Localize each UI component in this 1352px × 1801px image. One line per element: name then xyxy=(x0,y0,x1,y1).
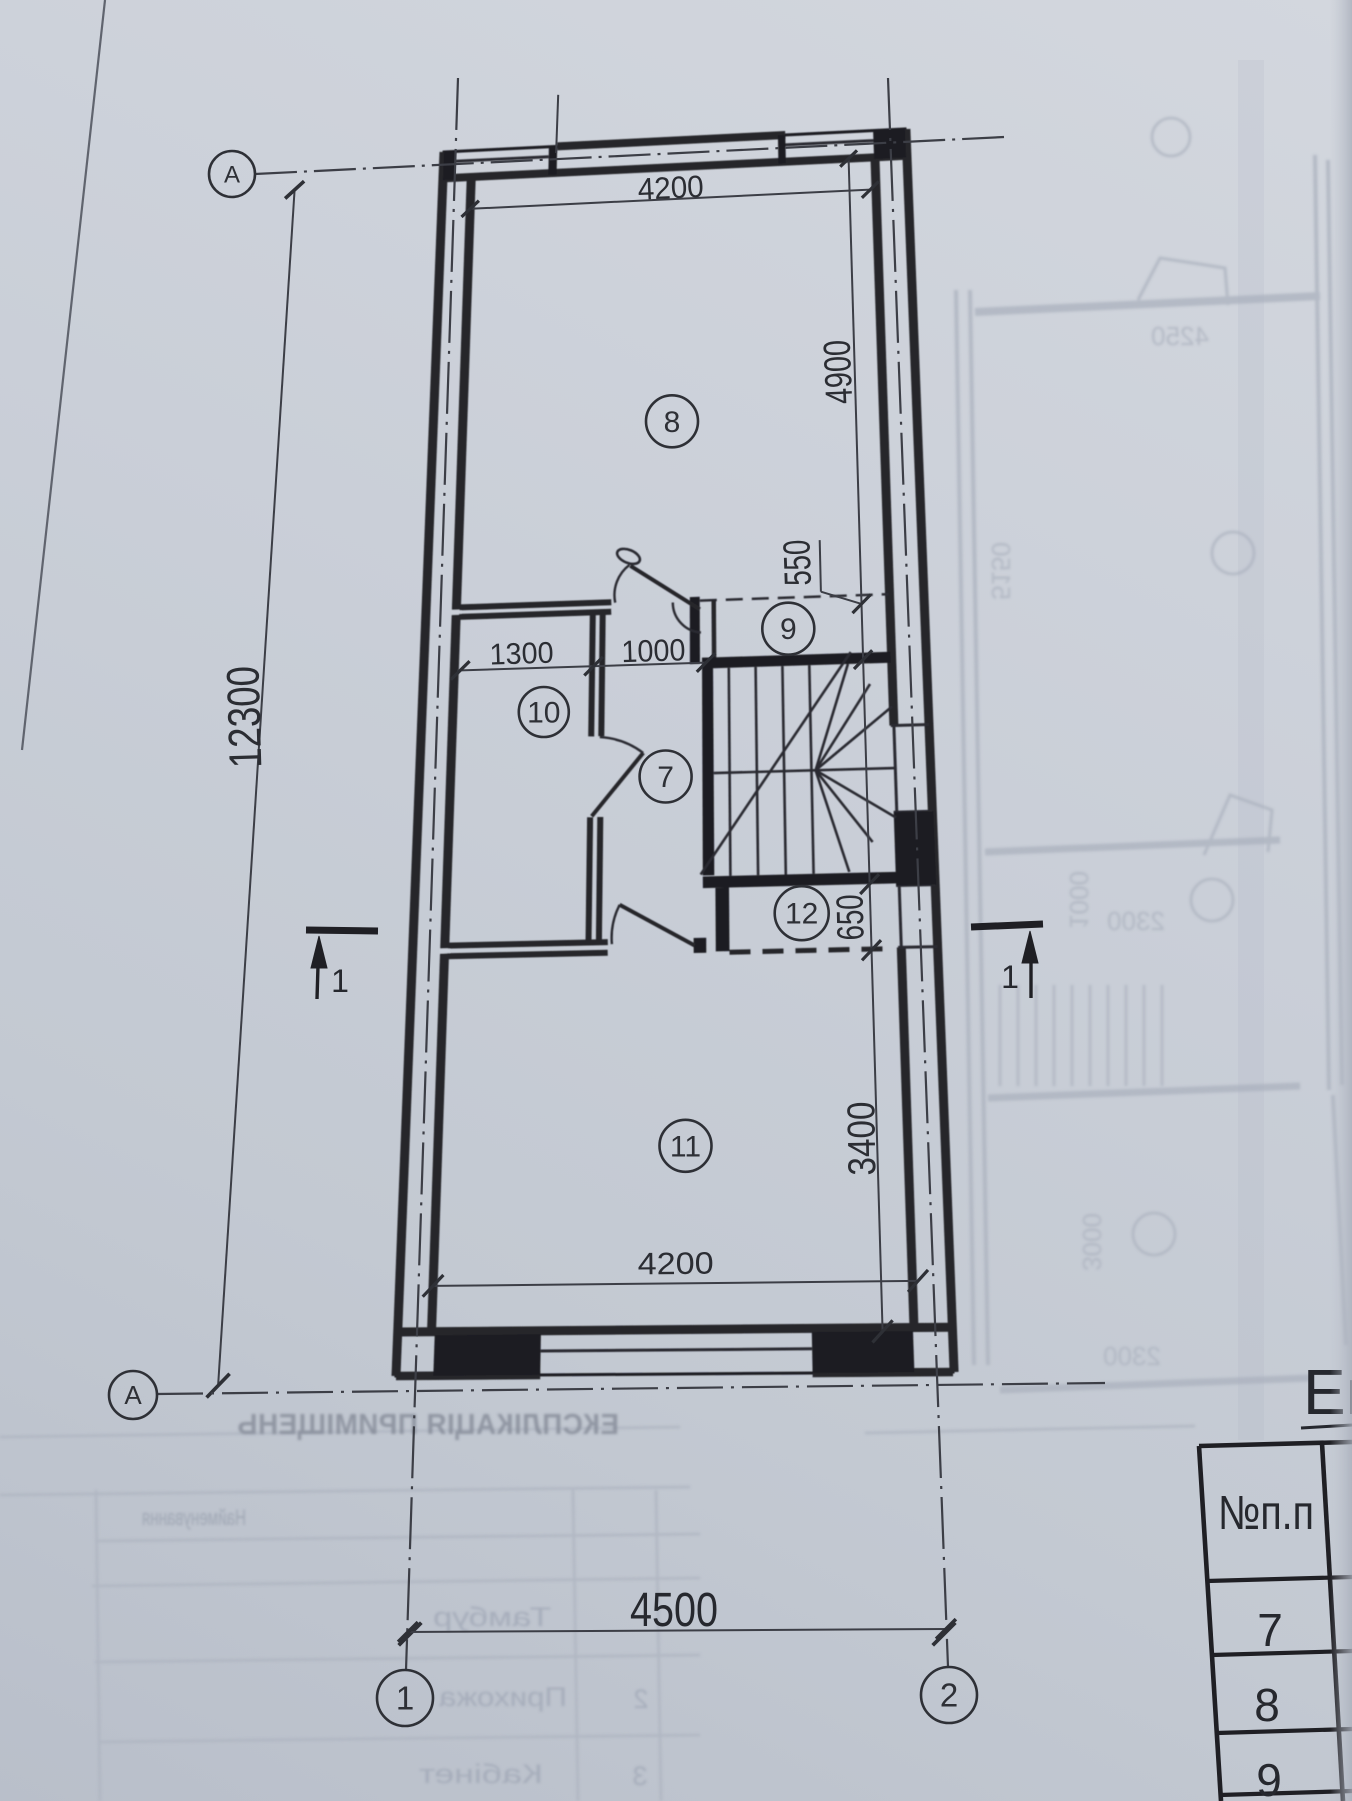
svg-text:2: 2 xyxy=(940,1677,958,1714)
svg-text:9: 9 xyxy=(780,613,797,646)
svg-text:Найменування: Найменування xyxy=(142,1505,246,1530)
svg-text:№п.п: №п.п xyxy=(1218,1487,1314,1540)
svg-text:12300: 12300 xyxy=(216,665,271,768)
svg-text:3000: 3000 xyxy=(1077,1213,1107,1271)
svg-text:550: 550 xyxy=(776,539,820,586)
svg-text:10: 10 xyxy=(527,697,560,730)
svg-text:Прихожа: Прихожа xyxy=(438,1682,567,1712)
svg-text:A: A xyxy=(124,1380,142,1410)
svg-text:Кабінет: Кабінет xyxy=(419,1759,543,1789)
svg-text:2: 2 xyxy=(633,1684,648,1714)
svg-text:4250: 4250 xyxy=(1151,321,1209,351)
svg-text:8: 8 xyxy=(664,406,681,439)
svg-text:7: 7 xyxy=(657,761,674,794)
svg-text:1000: 1000 xyxy=(1064,871,1094,929)
svg-text:8: 8 xyxy=(1254,1679,1280,1731)
svg-text:11: 11 xyxy=(670,1130,701,1163)
svg-text:4200: 4200 xyxy=(637,1246,713,1282)
svg-text:3: 3 xyxy=(632,1761,647,1791)
svg-text:4500: 4500 xyxy=(630,1584,718,1637)
svg-text:1: 1 xyxy=(396,1680,414,1717)
svg-text:3400: 3400 xyxy=(840,1101,884,1176)
svg-text:5150: 5150 xyxy=(986,542,1016,600)
svg-text:4200: 4200 xyxy=(637,169,705,207)
svg-text:1000: 1000 xyxy=(621,632,686,669)
svg-text:1300: 1300 xyxy=(489,637,554,672)
svg-text:2300: 2300 xyxy=(1103,1341,1161,1371)
svg-text:2300: 2300 xyxy=(1107,906,1165,936)
svg-text:Тамбур: Тамбур xyxy=(433,1602,551,1632)
svg-text:12: 12 xyxy=(785,898,818,931)
svg-text:9: 9 xyxy=(1256,1754,1282,1801)
svg-text:1: 1 xyxy=(1001,959,1019,995)
svg-text:650: 650 xyxy=(830,894,873,941)
svg-text:A: A xyxy=(224,161,240,188)
svg-text:7: 7 xyxy=(1257,1604,1283,1656)
svg-text:1: 1 xyxy=(331,963,349,999)
svg-text:4900: 4900 xyxy=(817,339,862,405)
svg-text:ЕКСПЛІКАЦІЯ ПРИМІЩЕНЬ: ЕКСПЛІКАЦІЯ ПРИМІЩЕНЬ xyxy=(237,1409,619,1441)
